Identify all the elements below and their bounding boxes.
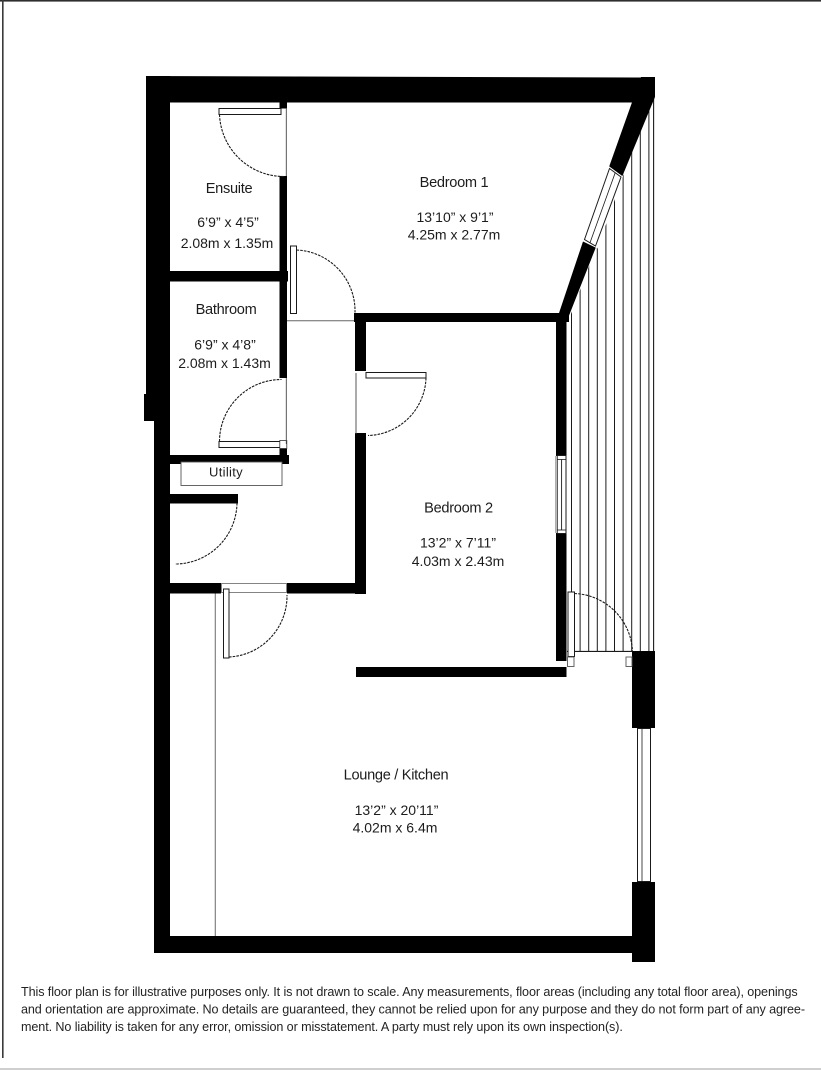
svg-text:Bedroom 1: Bedroom 1 xyxy=(420,175,489,191)
svg-text:This floor plan is for illustr: This floor plan is for illustrative purp… xyxy=(21,985,798,999)
svg-text:4.02m x 6.4m: 4.02m x 6.4m xyxy=(353,820,438,836)
svg-text:and orientation are approximat: and orientation are approximate. No deta… xyxy=(21,1003,805,1017)
svg-text:2.08m x 1.43m: 2.08m x 1.43m xyxy=(178,355,271,371)
svg-text:Bathroom: Bathroom xyxy=(196,302,257,318)
svg-text:13’2” x 20’11”: 13’2” x 20’11” xyxy=(355,802,439,818)
svg-text:2.08m x 1.35m: 2.08m x 1.35m xyxy=(181,235,274,251)
svg-text:4.03m x 2.43m: 4.03m x 2.43m xyxy=(412,553,505,569)
svg-text:13’10” x 9’1”: 13’10” x 9’1” xyxy=(416,209,493,225)
svg-text:13’2” x 7’11”: 13’2” x 7’11” xyxy=(420,535,496,551)
svg-text:Lounge / Kitchen: Lounge / Kitchen xyxy=(344,768,449,784)
svg-text:6’9” x 4’8”: 6’9” x 4’8” xyxy=(194,337,256,353)
svg-text:Bedroom 2: Bedroom 2 xyxy=(424,501,493,517)
svg-text:Utility: Utility xyxy=(209,465,243,480)
svg-text:6’9” x 4’5”: 6’9” x 4’5” xyxy=(197,214,259,230)
svg-text:Ensuite: Ensuite xyxy=(206,181,253,197)
svg-text:ment. No liability is taken fo: ment. No liability is taken for any erro… xyxy=(21,1020,623,1034)
svg-text:4.25m x 2.77m: 4.25m x 2.77m xyxy=(408,227,501,243)
